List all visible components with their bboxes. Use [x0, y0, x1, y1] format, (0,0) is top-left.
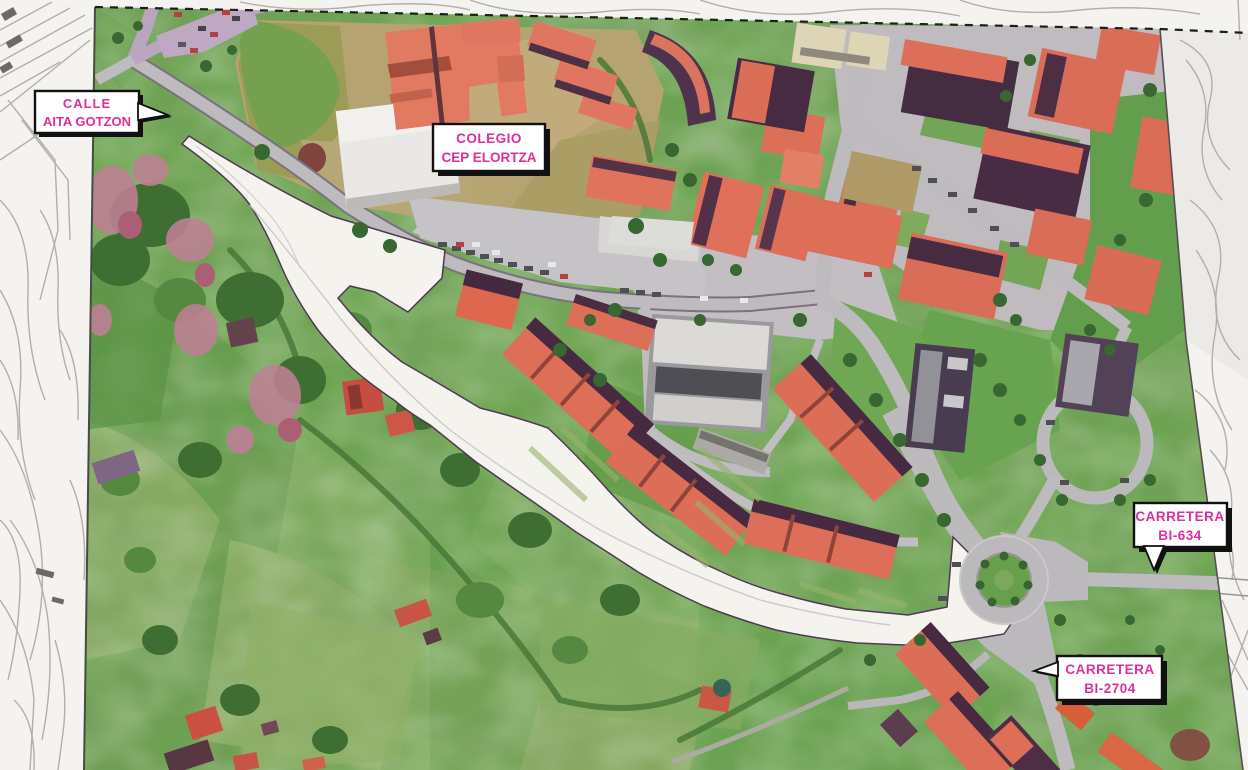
- svg-text:BI-2704: BI-2704: [1084, 681, 1136, 696]
- svg-text:BI-634: BI-634: [1158, 528, 1202, 543]
- svg-text:COLEGIO: COLEGIO: [456, 131, 522, 146]
- svg-text:AITA GOTZON: AITA GOTZON: [43, 114, 131, 129]
- svg-text:CARRETERA: CARRETERA: [1135, 509, 1224, 524]
- svg-text:CARRETERA: CARRETERA: [1065, 662, 1154, 677]
- svg-text:CEP ELORTZA: CEP ELORTZA: [441, 150, 536, 165]
- svg-text:CALLE: CALLE: [63, 96, 111, 111]
